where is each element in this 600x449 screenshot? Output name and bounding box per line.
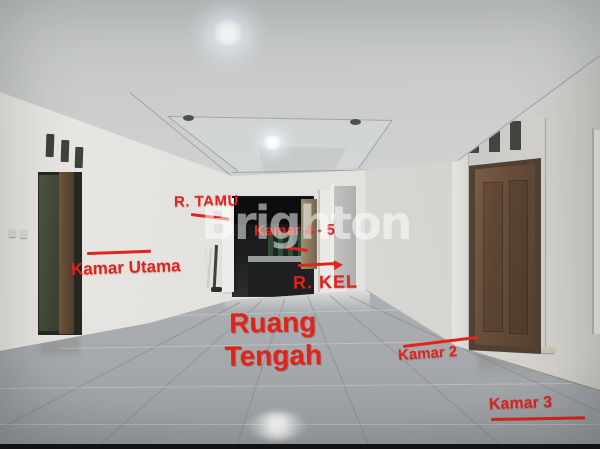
annotation-kamar-3: Kamar 3 (489, 394, 553, 414)
light-switch (20, 230, 27, 238)
downlight-back (263, 135, 282, 150)
vent (510, 121, 521, 150)
ceiling-spot (183, 115, 194, 121)
annotation-kamar-utama: Kamar Utama (71, 256, 181, 280)
green-door (39, 175, 60, 331)
bottom-black-bar (0, 444, 600, 449)
photo-canvas: R. TAMU Kamar 4 - 5 R. KEL Kamar Utama R… (0, 0, 600, 449)
ceiling-spot (350, 119, 361, 125)
annotation-ruang-line1: Ruang (199, 305, 346, 341)
annotation-r-kel: R. KEL (293, 271, 358, 293)
vent (75, 147, 84, 168)
floor-debris (541, 347, 555, 353)
annotation-ruang-line2: Tengah (200, 338, 347, 374)
wall-corner-shadow (545, 118, 546, 352)
annotation-ruang-tengah: Ruang Tengah (199, 305, 346, 374)
downlight-front (213, 19, 243, 46)
tile-grout-line (0, 383, 600, 389)
door-panel (509, 180, 528, 334)
vent (46, 134, 55, 157)
door-frame (59, 172, 74, 334)
door-panel (483, 182, 503, 332)
light-switch (9, 229, 16, 237)
watermark-brighton: Brighton (201, 196, 411, 250)
white-door (594, 130, 600, 334)
floor-reflection (248, 412, 306, 440)
annotation-arrowhead-r-kel (334, 260, 344, 270)
broom-head (211, 287, 222, 292)
vent (61, 140, 70, 162)
